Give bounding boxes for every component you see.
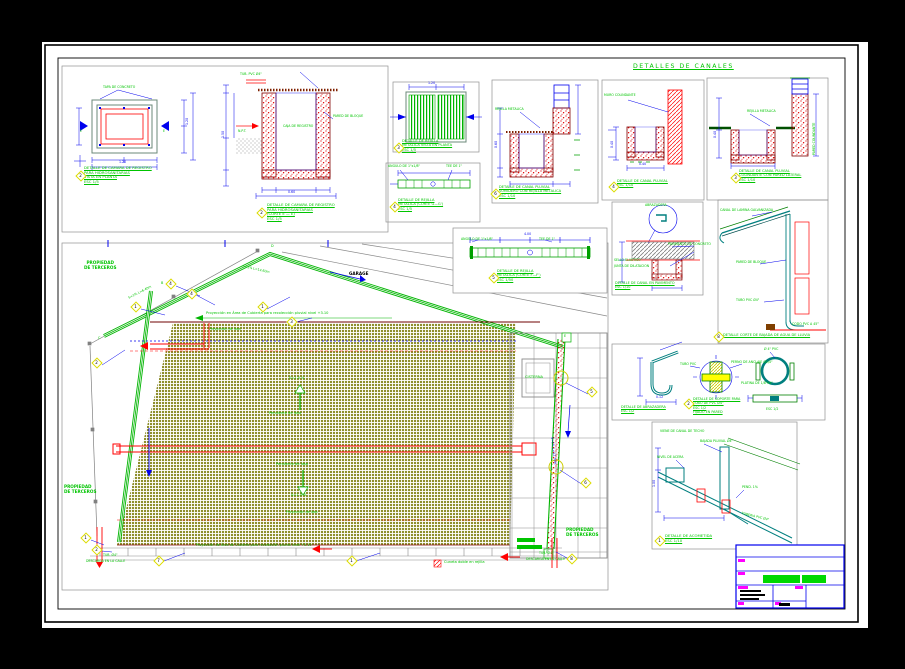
label-line: ESC 1/50 [497,278,541,282]
annotation: NIVEL DE ACERA [657,456,683,460]
label-line: ESC 1/5 [402,148,452,152]
callout-number: 2 [92,547,101,552]
annotation: PERNO DE ANCLAJE Ø1/4" [731,361,772,365]
annotation: N.P.T. [238,130,246,134]
corner-marker: E [564,335,566,339]
descarga-label: DESCARGA EN LA CALLE [526,558,565,562]
callout-number: 3 [287,319,296,324]
annotation: PEND. 1% [742,486,758,490]
dim-text: 1.00 [653,480,657,487]
callout-number: 2 [92,360,101,365]
callout-diamond: 4 [390,202,399,211]
callout-number: 1 [655,538,664,543]
callout-diamond: 2 [92,358,101,367]
callout-number: 1 [258,304,267,309]
section-marker-e: E [163,130,165,134]
label-line: DE TERCEROS [566,532,598,537]
callout-diamond: 4 [609,182,618,191]
propiedad-terceros: PROPIEDAD DE TERCEROS [566,527,598,538]
label-soporte: DETALLE DE SOPORTE PARA TUBO DE PVC Ø4" … [693,397,740,414]
annotation: PLATINA DE 1/8"x1" [741,382,773,386]
label-line: ESC 1/10 [499,194,561,198]
dim-text: 0.40 [639,163,646,167]
callout-number: 1 [347,558,356,563]
callout-number: 8 [567,556,576,561]
callout-diamond: 1 [81,533,90,542]
annotation: REJILLA METALICA [747,110,776,114]
dim-text: 1.50 [222,131,226,138]
label-line: FIJADO EN PARED [693,410,740,414]
garage-label: GARAGE [349,272,368,277]
label-line: DE TERCEROS [84,265,116,270]
label-canal-a: DETALLE DE CANAL PLUVIAL ESC 1/10 [617,179,668,188]
annotation: PARED DE BLOQUE [333,115,363,119]
callout-diamond: 8 [714,332,723,341]
slope-label: S=1.0 % [291,493,307,497]
callout-number: 4 [609,184,618,189]
annotation: ANGULO DE 1"x1/8" [461,238,493,242]
callout-number: 4 [187,291,196,296]
callout-diamond: 2 [92,545,101,554]
pendiente-label: Pendiente de losa [269,411,301,415]
corner-marker: B [161,282,163,286]
callout-number: 6 [491,191,500,196]
callout-diamond: 1 [347,556,356,565]
callout-diamond: 2 [76,171,85,180]
label-sumidero: DETALLE DE CANAL PLUVIAL SUMIDERO CON RE… [499,185,561,198]
pendiente-label: Pendiente de losa [276,462,308,466]
callout-number: 6 [581,480,590,485]
annotation: TUB. PVC Ø4" [240,73,262,77]
projection-losa-label: Proyección de losa [209,328,241,332]
section-marker-e: E [80,130,82,134]
annotation: TAPA DE CONCRETO [103,86,135,90]
propiedad-terceros: PROPIEDAD DE TERCEROS [84,260,116,271]
label-line: ESC 1/10 [665,539,712,544]
callout-number: 7 [154,558,163,563]
annotation: TEE DE 1" [446,165,462,169]
detail-canal-b [709,78,819,169]
label-line: ESC 1/2 [621,409,666,413]
dim-text: 0.60 [495,141,499,148]
annotation: CAJA DE REGISTRO [283,125,313,129]
label-pavimento: DETALLE DE CANAL EN PAVIMENTO ESC 1/10 [615,281,675,290]
annotation: ESC 1/2 [766,408,778,412]
detail-sumidero [497,85,581,187]
annotation: ABRAZADERA [645,204,667,208]
tub-label: TUB. Ø4" [103,554,118,558]
annotation: SELLO ELASTICO [614,259,641,263]
callout-number: 1 [131,304,140,309]
detail-canal-a [608,90,682,171]
annotation: CANAL DE LAMINA GALVANIZADA [720,209,773,213]
callout-number: 4 [390,204,399,209]
annotation: BAJADA PLUVIAL Ø4" [700,440,733,444]
callout-number: 2 [257,210,266,215]
annotation: CODO PVC A 45° [792,323,819,327]
callout-diamond: 1 [258,302,267,311]
dim-text: 4.00 [524,233,531,237]
dim-text: 1.20 [186,118,190,125]
callout-diamond: 7 [154,556,163,565]
label-line: ESC 1/10 [739,178,801,182]
callout-number: 3 [731,175,740,180]
callout-diamond: 3 [394,143,403,152]
callout-diamond: 1 [655,536,664,545]
dim-text: 0.12 [656,396,663,400]
label-line: DE TERCEROS [64,489,96,494]
corner-marker: C [98,337,100,341]
detail-pavimento [619,205,700,291]
label-rejilla-g: DETALLE DE REJILLA METALICA (CORTE G—G')… [398,198,443,211]
annotation: PARED COLINDANTE [813,123,817,155]
projection-losa-label: Proyección de losa [286,511,318,515]
callout-number: 3 [394,145,403,150]
callout-diamond: 2 [257,208,266,217]
detail-rejilla-g [390,170,470,188]
projection-label: Proyección de Área de Cubierta para reco… [196,544,312,548]
dim-text: 1.20 [428,82,435,86]
callout-diamond: 1 [131,302,140,311]
callout-diamond: 3 [731,173,740,182]
cisterna-label: CISTERNA [525,375,543,379]
annotation: TEE DE 1" [539,238,555,242]
label-line: ESC 1/5 [84,180,152,185]
label-camara-corte: DETALLE DE CAMARA DE REGISTRO PARA HIDRO… [267,203,335,222]
callout-diamond: 5 [489,273,498,282]
callout-diamond: 3 [287,317,296,326]
annotation: VIENE DE CANAL DE TECHO [660,430,704,434]
dim-text: 0.60 [288,191,295,195]
label-line: ESC 1/5 [398,207,443,211]
annotation: ANGULO DE 1"x1/8" [388,165,420,169]
annotation: REJILLA METALICA [495,108,524,112]
detail-bajada [720,207,826,330]
green-note-bar [517,538,535,542]
callout-diamond: 4 [166,279,175,288]
dim-text: 1.20 [119,161,126,165]
cad-sheet-stage: DETALLES DE CANALES DETALLE DE CAMARA DE… [0,0,905,669]
callout-diamond: 8 [567,554,576,563]
annotation: TUBO PVC [680,363,696,367]
annotation: Ø 4" PVC [764,348,778,352]
label-line: ESC 1/5 [267,217,335,222]
sheet-title: DETALLES DE CANALES [633,63,734,70]
label-line: ESC 1/10 [617,183,668,187]
label-gancho: DETALLE DE ABRAZADERA ESC 1/2 [621,405,666,414]
dim-text: 0.40 [714,131,718,138]
label-canal-b: DETALLE DE CANAL PLUVIAL COLINDANTE CON … [739,169,801,182]
callout-number: 4 [166,281,175,286]
label-rejilla-planta: DETALLE DE REJILLA METALICA VISTA EN PLA… [402,139,452,152]
detail-camara-corte [223,72,338,199]
label-camara-planta: DETALLE DE CAMARA DE REGISTRO PARA HIDRO… [84,166,152,185]
callout-number: 5 [587,389,596,394]
legend-swatch [434,560,441,567]
detail-camara-planta [74,90,196,170]
detail-rejilla-planta [390,84,482,142]
green-note-bar [517,545,542,549]
callout-number: 2 [684,401,693,406]
callout-number: 5 [489,275,498,280]
callout-number: 2 [76,173,85,178]
label-bajada: DETALLE CORTE DE BAJADA DE AGUA DE LLUVI… [723,333,810,337]
descarga-label: DESCARGA EN LA CALLE [86,560,125,564]
legend-label: Cuneta doble en rejilla [444,560,485,564]
propiedad-terceros: PROPIEDAD DE TERCEROS [64,484,96,495]
title-block [736,545,844,608]
callout-number: 1 [81,535,90,540]
label-line: ESC 1/10 [615,285,675,289]
annotation: MURO COLINDANTE [604,94,636,98]
dim-text: 0.40 [611,141,615,148]
right-channel [544,333,571,558]
callout-diamond: 2 [684,399,693,408]
annotation: PARED DE BLOQUE [736,261,766,265]
projection-label: Proyección en Área de Cubierta para reco… [206,311,328,315]
corner-marker: E [546,551,548,555]
callout-diamond: 5 [587,387,596,396]
corner-marker: D [271,245,274,249]
slope-label: S=1.0 % [289,376,305,380]
label-rejilla-f: DETALLE DE REJILLA METALICA (CORTE F—F')… [497,269,541,282]
label-acometida: DETALLE DE ACOMETIDA ESC 1/10 [665,534,712,543]
annotation: PAVIMENTO DE CONCRETO [668,243,711,247]
annotation: JUNTA DE DILATACION [614,265,649,269]
callout-diamond: 4 [187,289,196,298]
callout-diamond: 6 [491,189,500,198]
detail-acometida [655,438,800,543]
callout-diamond: 6 [581,478,590,487]
callout-number: 8 [714,334,723,339]
annotation: TUBO PVC Ø4" [736,299,759,303]
